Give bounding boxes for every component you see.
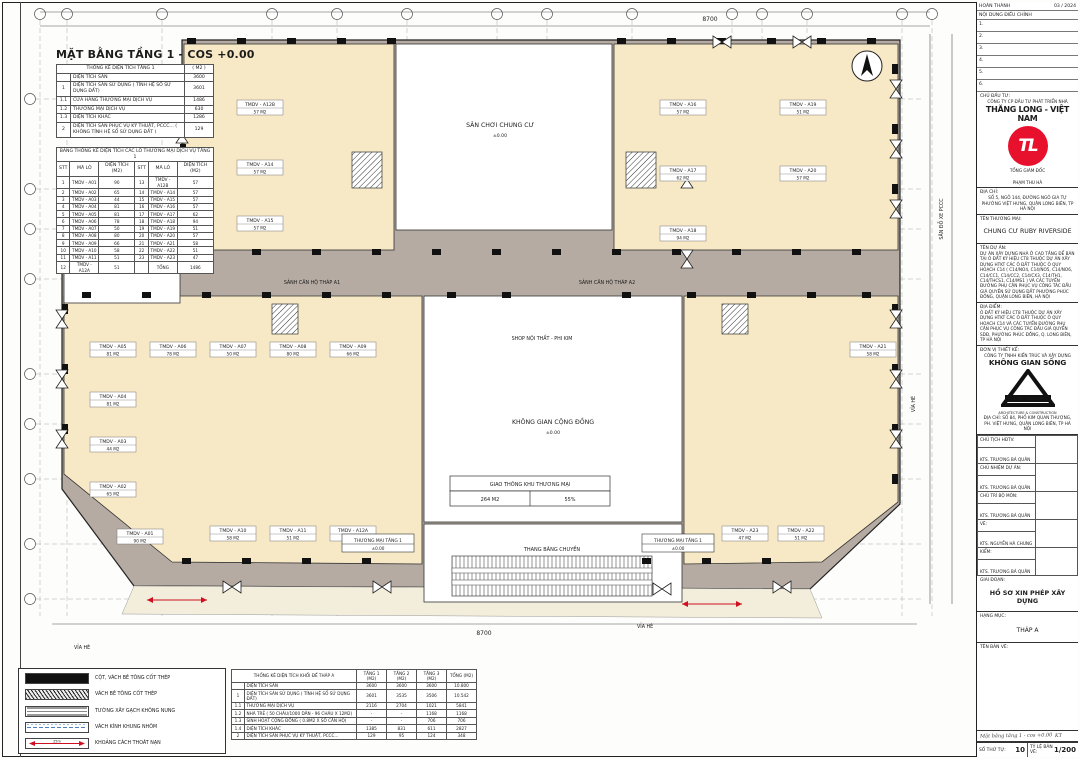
label-sidewalk-left: VỈA HÈ [74, 643, 90, 651]
handwritten-note: Mặt bằng tầng 1 - cos +0.00 KT [977, 731, 1078, 742]
stage-label: GIAI ĐOẠN: [980, 578, 1075, 583]
drawing-name-section: TÊN BẢN VẼ: [977, 643, 1078, 731]
revision-row: 3. [977, 44, 1078, 56]
column [82, 292, 91, 298]
revision-row: 1. [977, 20, 1078, 32]
investor-company: CÔNG TY CP ĐẦU TƯ PHÁT TRIỂN NHÀ [980, 99, 1075, 104]
legend-item: 25mKHOẢNG CÁCH THOÁT NẠN [25, 738, 219, 749]
revision-row: 5. [977, 68, 1078, 80]
room-code: TMDV - A12B [244, 102, 275, 108]
room-area: 62 M2 [677, 176, 690, 181]
category-value: THÁP A [980, 627, 1075, 634]
wing-left-rooms [184, 44, 394, 250]
table-row: 2DIỆN TÍCH SÀN PHỤC VỤ KỸ THUẬT, PCCC...… [57, 123, 214, 137]
room-chip: TMDV - A1457 M2 [237, 160, 283, 175]
table-row: 1DIỆN TÍCH SÀN SỬ DỤNG ( TÍNH HỆ SỐ SỬ D… [232, 690, 477, 703]
escalator-rail [452, 580, 652, 585]
grid-bubble [62, 9, 73, 20]
stair-core [352, 152, 382, 188]
room-chip: TMDV - A2251 M2 [778, 526, 824, 541]
room-area: 80 M2 [287, 352, 300, 357]
designer-logo: Life Space [1001, 369, 1055, 409]
lots-table: BẢNG THỐNG KÊ DIỆN TÍCH CÁC LÔ THƯƠNG MẠ… [56, 147, 214, 274]
scale-value: 1/200 [1054, 746, 1076, 754]
sheet-margin-line [20, 2, 21, 757]
room-chip: TMDV - A0265 M2 [90, 482, 136, 497]
trade-name-section: TÊN THƯƠNG MẠI: CHUNG CƯ RUBY RIVERSIDE [977, 215, 1078, 244]
address-line1: SỐ 5, NGÕ 144, ĐƯỜNG NGÔ GIA TỰ [980, 195, 1075, 200]
room-chip: TMDV - A0481 M2 [90, 392, 136, 407]
signature-label-row: KIỂM: [978, 547, 1078, 559]
traffic-pct: 55% [564, 497, 575, 503]
room-code: TMDV - A14 [246, 162, 274, 168]
room-chip: TMDV - A12B57 M2 [237, 100, 283, 115]
table-row: 10TMDV - A105822TMDV - A2251 [57, 247, 214, 254]
table-row: 1TMDV - A019013TMDV - A12B57 [57, 176, 214, 189]
room-area: 57 M2 [254, 170, 267, 175]
trade-name-label: TÊN THƯƠNG MẠI: [980, 217, 1075, 222]
legend-label: VÁCH KÍNH KHUNG NHÔM [95, 725, 157, 730]
plan-title: MẶT BẰNG TẦNG 1 - COS +0.00 [56, 48, 255, 61]
room-area: 90 M2 [134, 539, 147, 544]
room-chip: TMDV - A0750 M2 [210, 342, 256, 357]
investor-logo-text: TL [1008, 126, 1048, 166]
room-chip: TMDV - A1894 M2 [660, 226, 706, 241]
escape-arrow-icon: 25m [25, 738, 89, 749]
table-row: 2DIỆN TÍCH SÀN PHỤC VỤ KỸ THUẬT, PCCC...… [232, 732, 477, 739]
completed-row: HOÀN THÀNH 03 / 2024 [977, 2, 1078, 11]
grid-bubble [332, 9, 343, 20]
hatch-wall-icon [25, 689, 89, 700]
table-row: 1.3DIỆN TÍCH KHÁC1286 [57, 114, 214, 123]
category-label: HẠNG MỤC: [980, 614, 1075, 619]
room-code: TMDV - A02 [99, 484, 127, 490]
column [892, 474, 898, 484]
room-code: TMDV - A16 [669, 102, 697, 108]
address-line2: PHƯỜNG VIỆT HƯNG, QUẬN LONG BIÊN, TP HÀ … [980, 201, 1075, 212]
column [242, 558, 251, 564]
column [182, 558, 191, 564]
grid-bubble [25, 594, 36, 605]
label-sidewalk-right: VỈA HÈ [637, 622, 653, 630]
room-area: 51 M2 [287, 536, 300, 541]
number-value: 10 [1015, 746, 1025, 754]
note-left: Mặt bằng tầng 1 - cos +0.00 [980, 732, 1052, 739]
project-section: TÊN DỰ ÁN: DỰ ÁN XÂY DỰNG NHÀ Ở CAO TẦNG… [977, 244, 1078, 303]
room-code: TMDV - A05 [99, 344, 127, 350]
signature-label-row: CHỦ NHIỆM DỰ ÁN: [978, 463, 1078, 475]
title-block: HOÀN THÀNH 03 / 2024 NỘI DUNG ĐIỀU CHỈNH… [976, 2, 1078, 757]
trade-name: CHUNG CƯ RUBY RIVERSIDE [980, 228, 1075, 235]
room-area: 78 M2 [167, 352, 180, 357]
column [322, 292, 331, 298]
room-code: TMDV - A21 [859, 344, 887, 350]
solid-wall-icon [25, 673, 89, 684]
column [672, 249, 681, 255]
label-sidewalk-vert: VỈA HÈ [909, 396, 917, 412]
revision-row: 2. [977, 32, 1078, 44]
label-escalator: THANG BĂNG CHUYỀN [523, 545, 581, 553]
area-table: THỐNG KÊ DIỆN TÍCH TẦNG 1( M2 )DIỆN TÍCH… [56, 64, 214, 138]
table-row: 1.1CỬA HÀNG THƯƠNG MẠI DỊCH VỤ1486 [57, 96, 214, 105]
room-code: TMDV - A09 [339, 344, 367, 350]
room-area: 44 M2 [107, 447, 120, 452]
designer-address: ĐỊA CHỈ: SỐ 84, PHỐ KIM QUAN THƯỢNG, PH.… [980, 415, 1075, 431]
designer-name: KHÔNG GIAN SỐNG [980, 358, 1075, 367]
room-code: TMDV - A23 [731, 528, 759, 534]
room-chip: TMDV - A1951 M2 [780, 100, 826, 115]
room-area: 58 M2 [227, 536, 240, 541]
designer-section: ĐƠN VỊ THIẾT KẾ: CÔNG TY TNHH KIẾN TRÚC … [977, 346, 1078, 435]
commercial-label-elev: ±0.00 [372, 546, 385, 551]
room-code: TMDV - A15 [246, 218, 274, 224]
room-area: 51 M2 [797, 110, 810, 115]
room-code: TMDV - A03 [99, 439, 127, 445]
room-area: 65 M2 [107, 492, 120, 497]
column [312, 249, 321, 255]
room-code: TMDV - A12A [337, 528, 369, 534]
table-row: 1.2NHÀ TRẺ ( 50 CHÁU/1000 DÂN - 96 CHÁU … [232, 710, 477, 717]
room-code: TMDV - A08 [279, 344, 307, 350]
project-text: DỰ ÁN XÂY DỰNG NHÀ Ở CAO TẦNG ĐỂ BÁN TẠI… [980, 251, 1075, 300]
column [287, 38, 296, 44]
column [372, 249, 381, 255]
block-right-rooms [684, 296, 898, 564]
column [892, 124, 898, 134]
column [762, 558, 771, 564]
table-row: 8TMDV - A088020TMDV - A2057 [57, 232, 214, 239]
legend-item: TƯỜNG XÂY GẠCH KHÔNG NUNG [25, 706, 219, 717]
grid-bubble [157, 9, 168, 20]
table-row: 3TMDV - A034415TMDV - A1557 [57, 196, 214, 203]
site-section: ĐỊA ĐIỂM: Ô ĐẤT KÝ HIỆU CT8 THUỘC DỰ ÁN … [977, 303, 1078, 346]
traffic-area: 264 M2 [481, 497, 500, 503]
grid-bubble [25, 184, 36, 195]
room-chip: TMDV - A2057 M2 [780, 166, 826, 181]
sheet-number-cell: SỐ THỨ TỰ: 10 [977, 743, 1028, 757]
investor-name: THĂNG LONG - VIỆT NAM [980, 105, 1075, 123]
room-code: TMDV - A22 [787, 528, 815, 534]
grid-bubble [25, 274, 36, 285]
column [892, 184, 898, 194]
room-area: 81 M2 [107, 352, 120, 357]
room-area: 51 M2 [795, 536, 808, 541]
room-chip: TMDV - A2158 M2 [850, 342, 896, 357]
grid-bubble [542, 9, 553, 20]
column [732, 249, 741, 255]
column [617, 38, 626, 44]
table-row: 1.3SINH HOẠT CỘNG ĐỒNG ( 0.8M2 X SỐ CĂN … [232, 717, 477, 724]
revision-label: NỘI DUNG ĐIỀU CHỈNH [979, 13, 1032, 18]
commercial-label-elev: ±0.00 [672, 546, 685, 551]
column [362, 558, 371, 564]
room-code: TMDV - A06 [159, 344, 187, 350]
grid-bubble [35, 9, 46, 20]
table-row: 2TMDV - A026514TMDV - A1457 [57, 189, 214, 196]
table-row: 1.2THƯƠNG MẠI DỊCH VỤ630 [57, 105, 214, 114]
column [852, 249, 861, 255]
table-row: DIỆN TÍCH SÀN36003600360010.800 [232, 682, 477, 689]
stair-core [626, 152, 656, 188]
column [622, 292, 631, 298]
room-area: 47 M2 [739, 536, 752, 541]
room-chip: TMDV - A0966 M2 [330, 342, 376, 357]
room-chip: TMDV - A1058 M2 [210, 526, 256, 541]
grid-bubble [927, 9, 938, 20]
glass-wall-icon [25, 722, 89, 733]
table-row: 5TMDV - A058117TMDV - A1762 [57, 211, 214, 218]
column [687, 292, 696, 298]
grid-bubble [267, 9, 278, 20]
column [252, 249, 261, 255]
signature-label-row: CHỦ TRÌ BỘ MÔN: [978, 491, 1078, 503]
room-area: 57 M2 [254, 110, 267, 115]
column [552, 249, 561, 255]
room-code: TMDV - A11 [279, 528, 307, 534]
table-row: 4TMDV - A048116TMDV - A1657 [57, 203, 214, 210]
column [612, 249, 621, 255]
grid-bubble [25, 539, 36, 550]
legend: CỘT, VÁCH BÊ TÔNG CỐT THÉPVÁCH BÊ TÔNG C… [18, 668, 226, 754]
room-code: TMDV - A04 [99, 394, 127, 400]
traffic-title: GIAO THÔNG KHU THƯƠNG MẠI [490, 481, 571, 488]
traffic-stat-box: GIAO THÔNG KHU THƯƠNG MẠI 264 M2 55% [450, 476, 610, 506]
room-chip: TMDV - A1657 M2 [660, 100, 706, 115]
column [892, 64, 898, 74]
room-area: 50 M2 [227, 352, 240, 357]
column [807, 292, 816, 298]
room-area: 66 M2 [347, 352, 360, 357]
table-row: 12TMDV - A12A51TỔNG1486 [57, 261, 214, 274]
room-area: 81 M2 [107, 402, 120, 407]
room-code: TMDV - A19 [789, 102, 817, 108]
room-code: TMDV - A17 [669, 168, 697, 174]
drawing-sheet: 8700 8700 TMDV - A0190 M2TMDV - A0265 M2… [0, 0, 1080, 759]
scale-label: TỶ LỆ BẢN VẼ: [1030, 745, 1054, 755]
column [792, 249, 801, 255]
label-playground-top: SÂN CHƠI CHUNG CƯ [466, 120, 534, 129]
grid-bubble [492, 9, 503, 20]
stage-section: GIAI ĐOẠN: HỒ SƠ XIN PHÉP XÂY DỰNG [977, 576, 1078, 612]
room-chip: TMDV - A0344 M2 [90, 437, 136, 452]
room-chip: TMDV - A1762 M2 [660, 166, 706, 181]
table-row: 7TMDV - A075019TMDV - A1951 [57, 225, 214, 232]
column [337, 38, 346, 44]
grid-bubble [897, 9, 908, 20]
column [387, 38, 396, 44]
column [867, 38, 876, 44]
legend-item: CỘT, VÁCH BÊ TÔNG CỐT THÉP [25, 673, 219, 684]
column [302, 558, 311, 564]
dim-total-bottom: 8700 [476, 630, 491, 637]
column [202, 292, 211, 298]
completed-value: 03 / 2024 [1054, 4, 1076, 9]
room-area: 57 M2 [254, 226, 267, 231]
table-row: 9TMDV - A096621TMDV - A2158 [57, 240, 214, 247]
legend-item: VÁCH BÊ TÔNG CỐT THÉP [25, 689, 219, 700]
legend-label: CỘT, VÁCH BÊ TÔNG CỐT THÉP [95, 676, 170, 681]
note-right: KT [1055, 733, 1062, 739]
stage-value: HỒ SƠ XIN PHÉP XÂY DỰNG [980, 589, 1075, 605]
commercial-label-right: THƯƠNG MẠI TẦNG 1 ±0.00 [642, 534, 714, 552]
director-title: TỔNG GIÁM ĐỐC [980, 168, 1075, 173]
completed-label: HOÀN THÀNH [979, 4, 1010, 9]
column [432, 249, 441, 255]
scale-cell: TỶ LỆ BẢN VẼ: 1/200 [1028, 743, 1078, 757]
column [187, 38, 196, 44]
room-code: TMDV - A10 [219, 528, 247, 534]
column [702, 558, 711, 564]
grid-bubble [25, 224, 36, 235]
revision-rows: 1.2.3.4.5.6. [977, 20, 1078, 92]
column [817, 38, 826, 44]
category-section: HẠNG MỤC: THÁP A [977, 612, 1078, 643]
grid-bubble [402, 9, 413, 20]
grid-bubble [25, 419, 36, 430]
number-label: SỐ THỨ TỰ: [979, 748, 1006, 753]
table-row: 11TMDV - A115123TMDV - A2347 [57, 254, 214, 261]
svg-text:25m: 25m [53, 740, 61, 744]
escalator-area [452, 556, 652, 596]
room-code: TMDV - A18 [669, 228, 697, 234]
legend-label: VÁCH BÊ TÔNG CỐT THÉP [95, 692, 157, 697]
room-area: 94 M2 [677, 236, 690, 241]
grid-bubble [727, 9, 738, 20]
room-area: 58 M2 [867, 352, 880, 357]
escalator-rail [452, 568, 652, 573]
signature-table: CHỦ TỊCH HĐTV:KTS. TRƯƠNG BÁ QUÂNCHỦ NHI… [977, 435, 1078, 576]
room-chip: TMDV - A0880 M2 [270, 342, 316, 357]
number-scale-row: SỐ THỨ TỰ: 10 TỶ LỆ BẢN VẼ: 1/200 [977, 742, 1078, 757]
commercial-label-left: THƯƠNG MẠI TẦNG 1 ±0.00 [342, 534, 414, 552]
label-playground-top-elev: ±0.00 [493, 133, 507, 139]
stair-core [722, 304, 748, 334]
column [642, 558, 651, 564]
legend-label: TƯỜNG XÂY GẠCH KHÔNG NUNG [95, 709, 175, 714]
label-fire-lane: SÂN ĐỖ XE PCCC [937, 198, 945, 240]
revision-row: 4. [977, 56, 1078, 68]
column [237, 38, 246, 44]
column [382, 292, 391, 298]
room-chip: TMDV - A1151 M2 [270, 526, 316, 541]
grid-bubble [802, 9, 813, 20]
investor-logo: TL [1008, 126, 1048, 166]
legend-item: VÁCH KÍNH KHUNG NHÔM [25, 722, 219, 733]
room-chip: TMDV - A2347 M2 [722, 526, 768, 541]
site-text: Ô ĐẤT KÝ HIỆU CT8 THUỘC DỰ ÁN XÂY DỰNG H… [980, 310, 1075, 343]
room-code: TMDV - A01 [126, 531, 154, 537]
column [767, 38, 776, 44]
stair-core [272, 304, 298, 334]
designer-logo-text: Life Space [1013, 396, 1042, 402]
podium-area-table: THỐNG KÊ DIỆN TÍCH KHỐI ĐẾ THÁP ATẦNG 1 … [231, 669, 477, 740]
column [142, 292, 151, 298]
room-area: 57 M2 [677, 110, 690, 115]
grid-bubble [25, 474, 36, 485]
legend-label: KHOẢNG CÁCH THOÁT NẠN [95, 741, 161, 746]
room-chip: TMDV - A0190 M2 [117, 529, 163, 544]
table-row: 1.4DIỆN TÍCH KHÁC13858316112827 [232, 725, 477, 732]
column [862, 292, 871, 298]
table-row: 6TMDV - A067818TMDV - A1894 [57, 218, 214, 225]
grid-bubble [25, 94, 36, 105]
table-row: DIỆN TÍCH SÀN3600 [57, 73, 214, 82]
investor-section: CHỦ ĐẦU TƯ: CÔNG TY CP ĐẦU TƯ PHÁT TRIỂN… [977, 92, 1078, 188]
room-chip: TMDV - A0678 M2 [150, 342, 196, 357]
column [502, 292, 511, 298]
north-arrow-icon [852, 51, 882, 81]
grid-bubble [627, 9, 638, 20]
address-section: ĐỊA CHỈ: SỐ 5, NGÕ 144, ĐƯỜNG NGÔ GIA TỰ… [977, 188, 1078, 214]
label-community-elev: ±0.00 [546, 430, 560, 436]
grid-bubble [757, 9, 768, 20]
revision-row: 6. [977, 80, 1078, 92]
column [447, 292, 456, 298]
room-code: TMDV - A20 [789, 168, 817, 174]
signature-label-row: VẼ: [978, 519, 1078, 531]
column [492, 249, 501, 255]
column [262, 292, 271, 298]
table-row: 1.1THƯƠNG MẠI DỊCH VỤ2116270410215841 [232, 702, 477, 709]
director-name: PHẠM THU HÀ [980, 180, 1075, 185]
room-chip: TMDV - A0581 M2 [90, 342, 136, 357]
revision-header: NỘI DUNG ĐIỀU CHỈNH [977, 11, 1078, 20]
dim-total-top: 8700 [702, 16, 717, 23]
room-chip: TMDV - A1557 M2 [237, 216, 283, 231]
column [667, 38, 676, 44]
grid-bubble [25, 369, 36, 380]
column [747, 292, 756, 298]
room-area: 57 M2 [797, 176, 810, 181]
table-row: 1DIỆN TÍCH SÀN SỬ DỤNG ( TÍNH HỆ SỐ SỬ D… [57, 82, 214, 96]
room-code: TMDV - A07 [219, 344, 247, 350]
brick-wall-icon [25, 706, 89, 717]
signature-label-row: CHỦ TỊCH HĐTV: [978, 435, 1078, 447]
